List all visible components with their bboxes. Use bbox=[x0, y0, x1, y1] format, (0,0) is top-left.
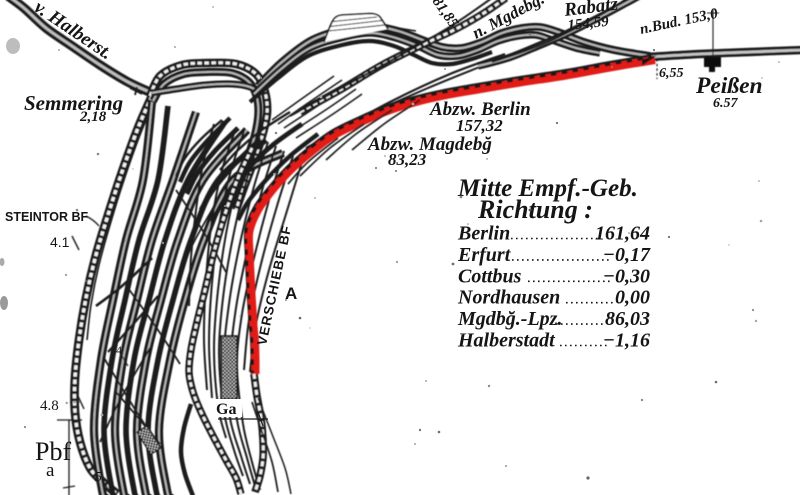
svg-text:Nordhausen: Nordhausen bbox=[457, 287, 560, 309]
svg-text:4.1: 4.1 bbox=[50, 234, 70, 250]
svg-text:Cottbus: Cottbus bbox=[458, 265, 522, 287]
svg-text:STEINTOR BF: STEINTOR BF bbox=[5, 210, 88, 224]
svg-text:−0,17: −0,17 bbox=[603, 244, 651, 266]
svg-text:−1,16: −1,16 bbox=[603, 330, 650, 352]
svg-text:6.57: 6.57 bbox=[713, 96, 739, 111]
svg-text:4: 4 bbox=[116, 343, 122, 357]
svg-text:Ga: Ga bbox=[216, 401, 236, 418]
svg-text:83,23: 83,23 bbox=[388, 150, 427, 169]
svg-text:6,55: 6,55 bbox=[659, 66, 684, 81]
svg-text:Halberstadt: Halberstadt bbox=[457, 330, 556, 352]
svg-text:4.8: 4.8 bbox=[40, 398, 59, 414]
svg-text:2,18: 2,18 bbox=[79, 109, 107, 125]
svg-text:5: 5 bbox=[95, 470, 102, 485]
svg-text:Erfurt: Erfurt bbox=[457, 244, 512, 266]
svg-text:Semmering: Semmering bbox=[24, 91, 123, 115]
svg-text:0,00: 0,00 bbox=[615, 287, 650, 309]
svg-text:−0,30: −0,30 bbox=[603, 265, 650, 287]
svg-text:a: a bbox=[46, 460, 55, 481]
svg-text:86,03: 86,03 bbox=[605, 308, 650, 330]
svg-text:Richtung :: Richtung : bbox=[477, 195, 593, 224]
svg-text:Berlin: Berlin bbox=[457, 223, 510, 245]
svg-text:161,64: 161,64 bbox=[595, 223, 650, 245]
svg-text:Abzw. Magdebğ: Abzw. Magdebğ bbox=[367, 134, 492, 155]
svg-text:Mgdbğ.-Lpz.: Mgdbğ.-Lpz. bbox=[457, 308, 562, 330]
svg-text:157,32: 157,32 bbox=[456, 116, 503, 135]
